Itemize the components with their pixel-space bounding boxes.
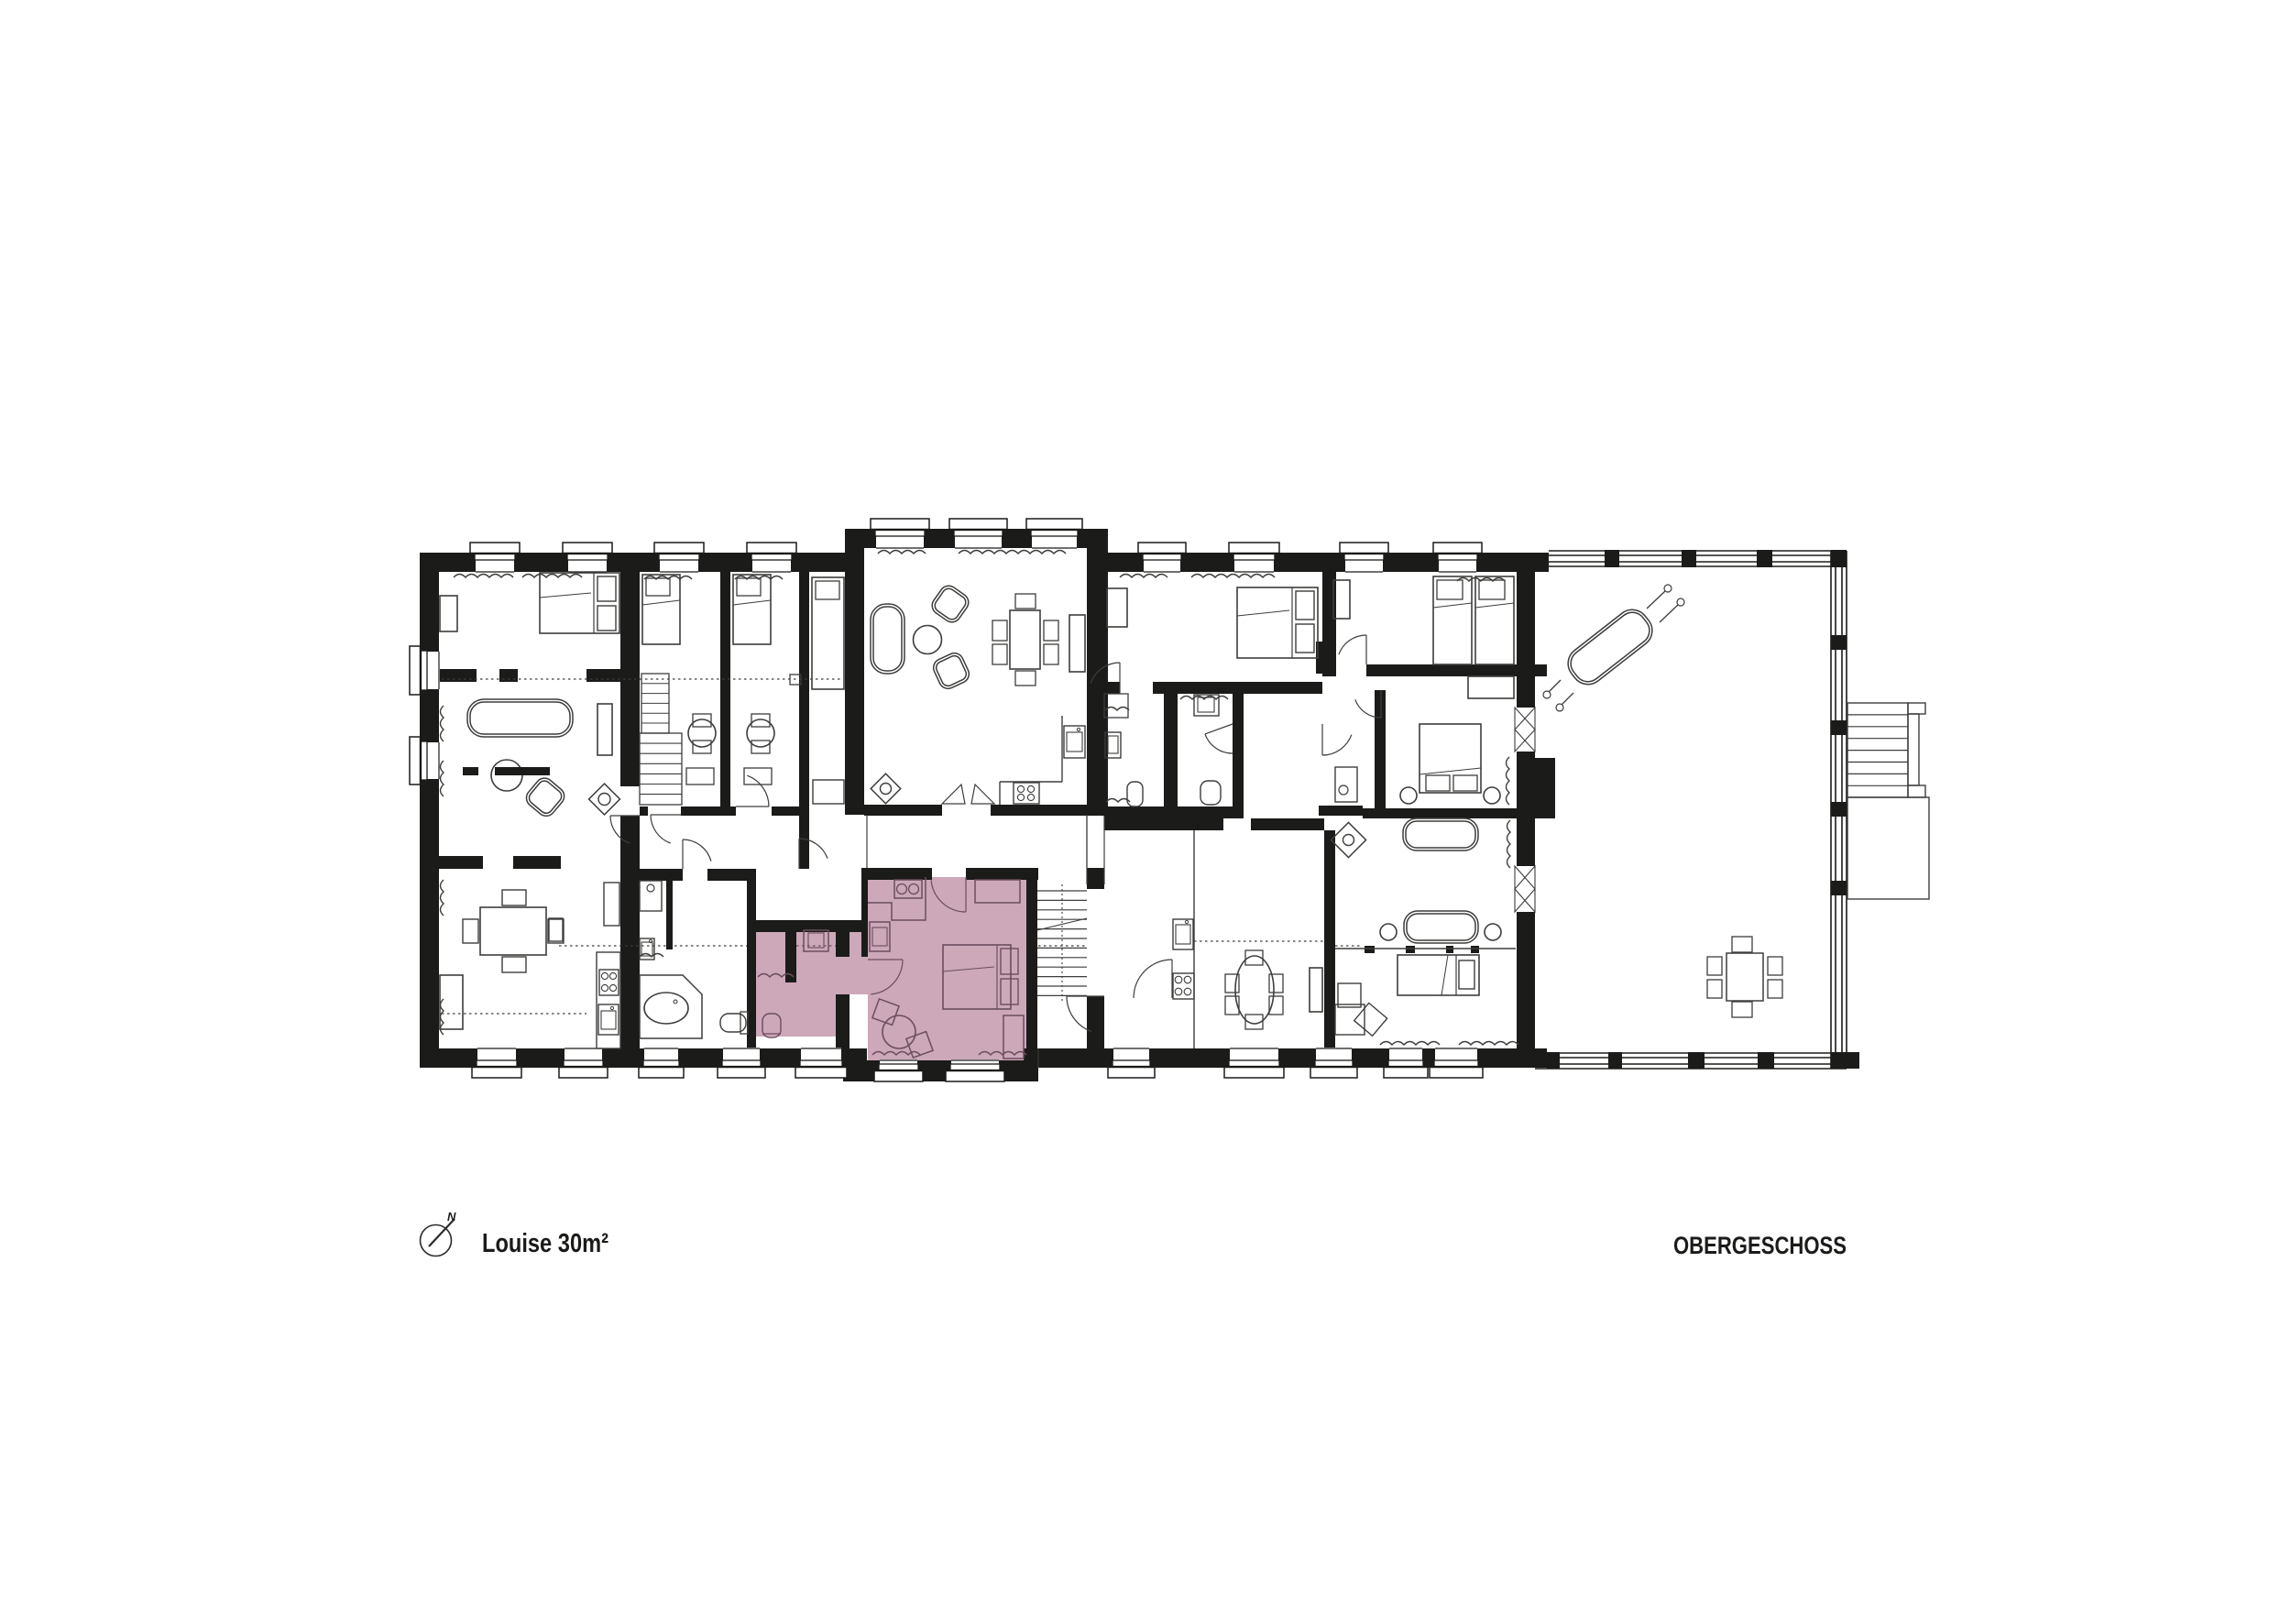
svg-text:N: N — [447, 1210, 456, 1223]
svg-text:OBERGESCHOSS: OBERGESCHOSS — [1673, 1232, 1847, 1259]
svg-text:Louise 30m²: Louise 30m² — [482, 1229, 608, 1258]
